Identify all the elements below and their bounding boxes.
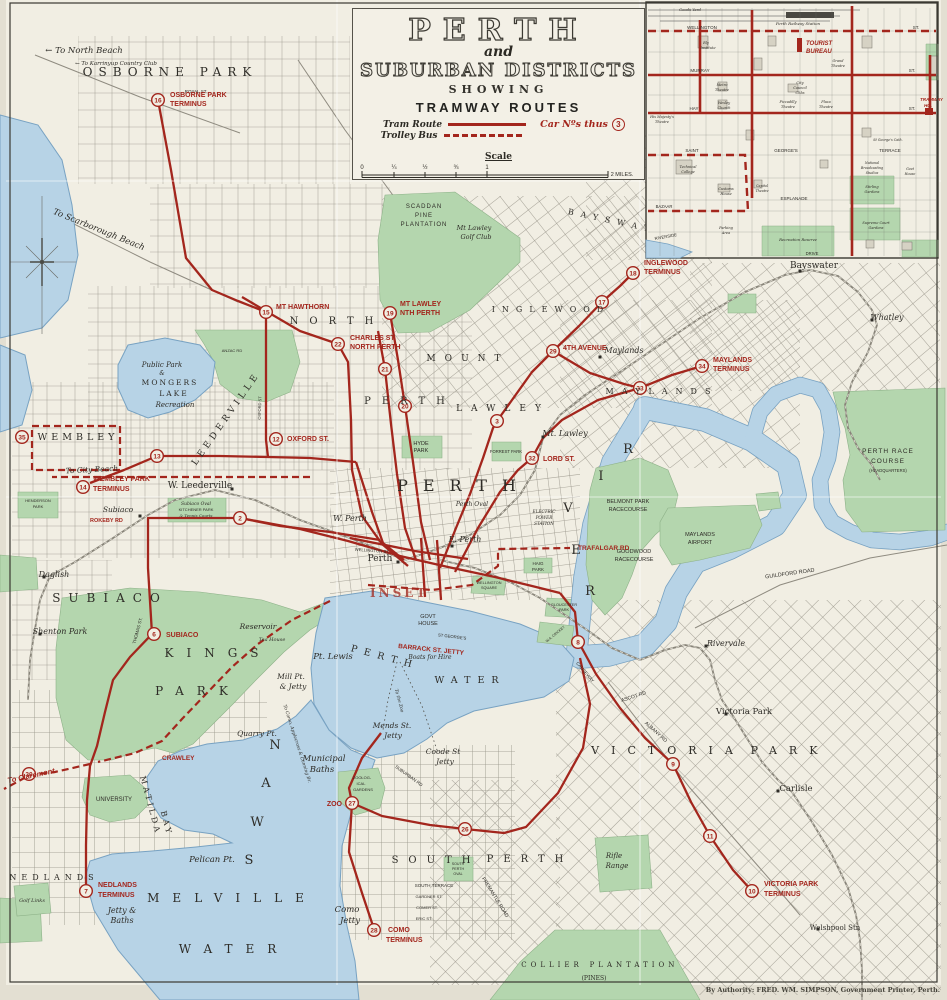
map-label: Perth Railway Station — [775, 21, 821, 26]
map-label: Rly — [702, 41, 710, 45]
map-label: Jetty — [382, 731, 402, 740]
map-label: ZOOLOG- — [353, 775, 372, 780]
map-label: PARK — [532, 567, 544, 572]
svg-text:15: 15 — [262, 309, 270, 316]
map-showing: SHOWING — [353, 83, 644, 96]
map-label: Jetty & — [106, 906, 137, 915]
map-title: PERTH — [353, 13, 644, 48]
map-label: Rifle — [605, 852, 622, 860]
map-label: E. Perth — [448, 535, 482, 544]
svg-text:32: 32 — [528, 455, 536, 462]
map-label: Theatre — [819, 105, 833, 109]
map-label: AIRPORT — [688, 540, 713, 546]
map-label: ROKEBY RD — [90, 518, 123, 524]
map-label: TRAMWAY — [920, 97, 944, 102]
map-label: MAYLANDS — [713, 357, 752, 364]
map-label: NTH PERTH — [400, 310, 440, 317]
map-label: Theatre — [715, 88, 729, 92]
map-label: NEDLANDS — [9, 873, 98, 882]
svg-text:26: 26 — [461, 826, 469, 833]
maylands-rec — [756, 492, 781, 511]
map-label: Perth — [368, 554, 393, 564]
map-label: 4TH AVENUE — [563, 345, 607, 352]
map-label: BELMONT PARK — [607, 499, 650, 505]
map-label: WEMBLEY PARK — [93, 476, 150, 483]
map-label: I — [598, 469, 603, 484]
map-label: Theatre — [781, 105, 795, 109]
map-label: SCADDAN — [406, 204, 442, 210]
map-label: ZOO — [327, 801, 343, 808]
map-label: Parking — [718, 226, 733, 230]
map-routes-heading: TRAMWAY ROUTES — [353, 100, 644, 115]
svg-text:14: 14 — [79, 484, 87, 491]
svg-text:7: 7 — [84, 888, 88, 895]
map-label: Whatley — [870, 313, 904, 322]
map-label: & — [159, 370, 165, 377]
map-label: TERRACE — [879, 148, 901, 153]
map-label: (PINES) — [582, 975, 607, 982]
map-label: W — [250, 815, 264, 830]
map-legend: Tram Route Car Nºs thus 3 Trolley Bus — [353, 119, 644, 141]
map-label: TERMINUS — [764, 891, 801, 898]
map-label: TERMINUS — [713, 366, 750, 373]
map-label: Piccadilly — [778, 100, 797, 104]
svg-text:16: 16 — [154, 97, 162, 104]
map-label: Customs — [718, 187, 734, 191]
map-label: PERTH — [487, 854, 574, 865]
map-label: Gardens — [869, 226, 884, 230]
map-label: ← To Karrinyup Country Club — [75, 61, 157, 67]
map-label: A — [260, 776, 271, 791]
map-label: Victoria Park — [715, 707, 773, 717]
map-label: House — [904, 172, 916, 176]
map-label: DRIVE — [806, 251, 819, 256]
map-label: Jetty — [338, 916, 360, 926]
map-label: POWER — [535, 515, 553, 520]
map-label: ESPLANADE — [780, 196, 807, 201]
scale-ruler: 0 ¼ ½ ¾ 1 2 MILES. — [358, 163, 640, 180]
svg-text:21: 21 — [381, 366, 389, 373]
map-label: Rivervale — [706, 639, 746, 648]
map-label: Quarry Pt. — [237, 729, 277, 738]
map-label: SOUTH — [452, 862, 465, 866]
map-label: House — [719, 192, 731, 196]
svg-text:8: 8 — [576, 639, 580, 646]
scale-tick: ½ — [422, 164, 427, 171]
map-label: Plaza — [820, 100, 831, 104]
map-label: Reservoir — [239, 622, 277, 631]
map-label: Shenton Park — [33, 627, 88, 636]
map-label: OSBORNE PARK — [170, 92, 227, 99]
map-label: S — [245, 853, 254, 868]
map-label: Broadcasting — [860, 166, 883, 170]
inset-map: Goods YardPerth Railway StationWELLINGTO… — [646, 2, 944, 258]
svg-text:27: 27 — [348, 800, 356, 807]
map-label: Supreme Court — [862, 221, 890, 225]
map-label: W. Perth — [333, 514, 367, 523]
map-label: & Tennis Courts — [180, 513, 213, 518]
map-title-and: and — [353, 44, 644, 60]
map-label: ST. — [913, 25, 920, 30]
map-label: ← To North Beach — [45, 46, 122, 56]
map-label: V — [562, 501, 573, 516]
map-label: Como — [335, 905, 360, 915]
map-label: COLLIER — [521, 961, 583, 969]
legend-tram-route-label: Tram Route — [372, 120, 448, 130]
map-label: COMO — [388, 927, 410, 934]
svg-text:28: 28 — [370, 927, 378, 934]
map-label: PLANTATION — [590, 961, 679, 969]
map-label: Municipal — [301, 754, 345, 764]
map-label: Mill Pt. — [276, 672, 305, 681]
map-label: Studios — [866, 171, 879, 175]
map-label: City — [796, 81, 804, 85]
svg-text:35: 35 — [18, 434, 26, 441]
imprint: By Authority: FRED. WM. SIMPSON, Governm… — [600, 986, 940, 994]
map-label: ERIC ST. — [416, 916, 432, 921]
map-label: TERMINUS — [93, 486, 130, 493]
legend-car-number-badge: 3 — [612, 118, 625, 131]
map-label: College — [681, 170, 694, 174]
map-label: OXFORD ST — [257, 396, 263, 420]
map-label: OVAL — [453, 872, 462, 876]
map-label: COMER ST. — [416, 905, 438, 910]
map-label: Perth Oval — [455, 501, 488, 508]
map-label: OXFORD ST. — [287, 436, 329, 443]
map-label: TRAFALGAR RD — [578, 545, 630, 552]
map-label: Goods Yard — [679, 7, 701, 12]
map-label: ST. — [909, 68, 916, 73]
map-label: CRAWLEY — [162, 755, 195, 762]
scale-tick: ¼ — [391, 165, 397, 171]
map-label: Baths — [109, 916, 133, 925]
map-label: LAKE — [159, 389, 188, 398]
map-label: INGLEWOOD — [492, 305, 610, 314]
map-label: GLOUCESTER — [551, 603, 577, 607]
map-label: TERMINUS — [98, 892, 135, 899]
map-label: Daglish — [38, 570, 70, 579]
map-label: Institute — [699, 46, 715, 50]
map-label: PARK — [155, 684, 241, 698]
map-label: GARDENS — [353, 787, 373, 792]
legend-trolley-bus-label: Trolley Bus — [368, 131, 444, 141]
map-label: Mends St. — [372, 721, 412, 730]
svg-text:12: 12 — [272, 436, 280, 443]
map-label: Carlisle — [779, 784, 812, 794]
map-label: MT HAWTHORN — [276, 304, 329, 311]
map-label: Welshpool Stn — [810, 924, 861, 932]
map-label: TOURIST — [806, 41, 834, 47]
bayswater-rec — [728, 294, 756, 313]
map-subtitle: SUBURBAN DISTRICTS — [353, 60, 644, 81]
map-label: VICTORIA PARK — [764, 881, 818, 888]
svg-text:22: 22 — [334, 341, 342, 348]
map-label: MELVILLE — [147, 891, 317, 905]
hyde-park — [402, 436, 442, 458]
map-label: VICTORIA — [590, 744, 745, 757]
svg-text:19: 19 — [386, 310, 394, 317]
map-label: PARK — [414, 448, 429, 454]
map-label: MT LAWLEY — [400, 301, 442, 308]
map-label: Gardens — [865, 190, 880, 194]
map-label: SQUARE — [481, 586, 498, 590]
map-label: HQ. — [924, 103, 932, 108]
map-label: Mt. Lawley — [541, 429, 588, 438]
map-label: Maylands — [603, 346, 643, 355]
map-label: Pt. Lewis — [312, 652, 353, 662]
map-label: Council — [793, 86, 807, 90]
scale-bar: Scale 0 ¼ ½ ¾ 1 2 MILES. — [353, 144, 644, 184]
map-label: (HEADQUARTERS) — [869, 468, 907, 473]
map-label: OSBORNE PARK — [83, 65, 258, 79]
map-label: N — [269, 738, 280, 753]
scale-label: Scale — [485, 152, 512, 162]
map-label: HAY — [690, 106, 699, 111]
map-label: PINE — [415, 213, 433, 219]
map-label: SOUTH TERRACE — [415, 883, 453, 888]
svg-text:29: 29 — [549, 348, 557, 355]
svg-text:3: 3 — [495, 418, 499, 425]
svg-text:34: 34 — [698, 363, 706, 370]
left-green-1 — [0, 555, 38, 592]
map-label: INGLEWOOD — [644, 260, 688, 267]
map-label: St George's Cath. — [873, 138, 902, 142]
map-label: HOUSE — [418, 621, 438, 627]
map-label: Jetty — [434, 757, 454, 766]
map-label: R — [585, 584, 596, 599]
map-label: Coode St — [426, 747, 462, 756]
map-label: Bayswater — [790, 261, 839, 271]
map-label: Metro — [716, 83, 728, 87]
map-label: CHARLES ST. — [350, 335, 396, 342]
map-label: Theatre — [831, 64, 845, 68]
map-label: Golf Club — [460, 233, 491, 241]
map-label: MAYLANDS — [606, 387, 719, 396]
svg-text:11: 11 — [707, 833, 714, 840]
trolley-bus-line-sample — [444, 134, 522, 137]
map-label: COURSE — [871, 458, 905, 465]
map-label: GEORGE'S — [774, 148, 798, 153]
map-label: W. Leederville — [168, 481, 232, 491]
map-label: INSET — [370, 586, 428, 600]
map-label: Subiaco — [103, 505, 134, 514]
map-label: Pelican Pt. — [188, 855, 235, 865]
map-label: NEDLANDS — [98, 882, 137, 889]
map-label: STATION — [534, 521, 554, 526]
map-label: MAYLANDS — [685, 532, 715, 538]
map-label: ICAL — [357, 781, 367, 786]
map-label: ELECTRIC — [532, 509, 557, 514]
map-label: PERTH RACE — [862, 448, 914, 455]
map-label: BUREAU — [806, 49, 832, 55]
map-label: Tea House — [259, 637, 286, 643]
map-label: TERMINUS — [386, 937, 423, 944]
map-label: GARDNER ST. — [416, 894, 443, 899]
map-label: WATER — [434, 675, 505, 686]
map-label: MOUNT — [426, 354, 509, 364]
svg-text:9: 9 — [671, 761, 675, 768]
map-label: LORD ST. — [543, 456, 575, 463]
map-label: HAIG — [532, 561, 544, 566]
map-label: RACECOURSE — [609, 507, 648, 513]
map-label: Boats for Hire — [407, 654, 452, 661]
map-label: Stirling — [865, 185, 879, 189]
map-label: Range — [605, 862, 629, 870]
map-label: His Majesty's — [649, 115, 674, 119]
map-label: Area — [721, 231, 730, 235]
map-label: PARK — [751, 744, 830, 757]
map-label: Wesley — [718, 101, 731, 105]
map-label: SUBIACO — [52, 591, 168, 605]
map-label: HENDERSON — [25, 498, 51, 503]
perth-tramway-map-sheet: 1615192221203291718333432121335142630727… — [0, 0, 947, 1000]
map-label: PLANTATION — [401, 222, 448, 228]
map-label: FORREST PARK — [490, 449, 522, 454]
map-label: Baths — [309, 765, 335, 775]
title-block: PERTH and SUBURBAN DISTRICTS SHOWING TRA… — [352, 8, 645, 180]
map-label: TERMINUS — [644, 269, 681, 276]
map-label: SOUTH — [392, 855, 481, 866]
map-label: Recreation — [155, 401, 195, 409]
map-label: LAWLEY — [456, 404, 550, 414]
svg-text:2: 2 — [238, 515, 242, 522]
map-label: Golf Links — [19, 898, 45, 904]
map-label: Capitol — [756, 184, 768, 188]
map-label: Theatre — [755, 189, 768, 193]
scale-end-label: 2 MILES. — [610, 172, 633, 178]
map-label: MONGERS — [142, 378, 199, 387]
map-label: PERTH — [364, 396, 456, 407]
map-label: NORTH — [290, 316, 385, 327]
map-label: Govt — [906, 167, 914, 171]
map-label: Theatre — [655, 120, 669, 124]
map-label: SUBIACO — [166, 632, 199, 639]
map-label: Grand — [832, 59, 844, 63]
map-label: Mt Lawley — [456, 224, 492, 232]
scale-tick: 0 — [360, 165, 364, 171]
map-label: WATER — [179, 942, 290, 956]
map-label: Recreation Reserve — [778, 237, 817, 242]
map-label: MURRAY — [690, 68, 709, 73]
svg-text:10: 10 — [748, 888, 756, 895]
map-label: National — [864, 161, 879, 165]
map-label: BAZAAR — [656, 204, 673, 209]
map-label: KINGS — [164, 646, 271, 660]
tram-route-line-sample — [448, 123, 526, 126]
map-label: UNIVERSITY — [96, 797, 132, 803]
map-label: SAINT — [685, 148, 699, 153]
map-label: Public Park — [141, 361, 182, 369]
map-label: RACECOURSE — [615, 557, 654, 563]
legend-car-number-label: Car Nºs thus — [540, 119, 608, 130]
svg-text:6: 6 — [152, 631, 156, 638]
map-label: & Jetty — [280, 682, 308, 691]
scale-tick: 1 — [485, 165, 489, 171]
map-label: KITCHENER PARK — [179, 507, 214, 512]
map-label: Technical — [680, 165, 697, 169]
map-label: PARK — [33, 504, 44, 509]
map-label: Church — [717, 106, 730, 110]
map-label: WELLINGTON — [687, 25, 717, 30]
map-label: ANZAC RD — [222, 348, 243, 353]
map-label: HYDE — [413, 441, 429, 447]
map-label: R — [623, 442, 634, 457]
map-label: PARK — [559, 608, 570, 612]
map-label: ST. — [909, 106, 916, 111]
map-label: GOVT — [420, 614, 436, 620]
map-label: WELLINGTON — [476, 581, 501, 585]
map-label: PERTH — [452, 867, 465, 871]
map-label: Chbs — [796, 91, 805, 95]
scale-tick: ¾ — [453, 165, 459, 171]
map-label: NORTH PERTH — [350, 344, 401, 351]
svg-text:13: 13 — [153, 453, 161, 460]
map-label: WEMBLEY — [38, 432, 119, 443]
svg-text:18: 18 — [629, 270, 637, 277]
map-label: TERMINUS — [170, 101, 207, 108]
map-label: PERTH — [397, 476, 531, 495]
